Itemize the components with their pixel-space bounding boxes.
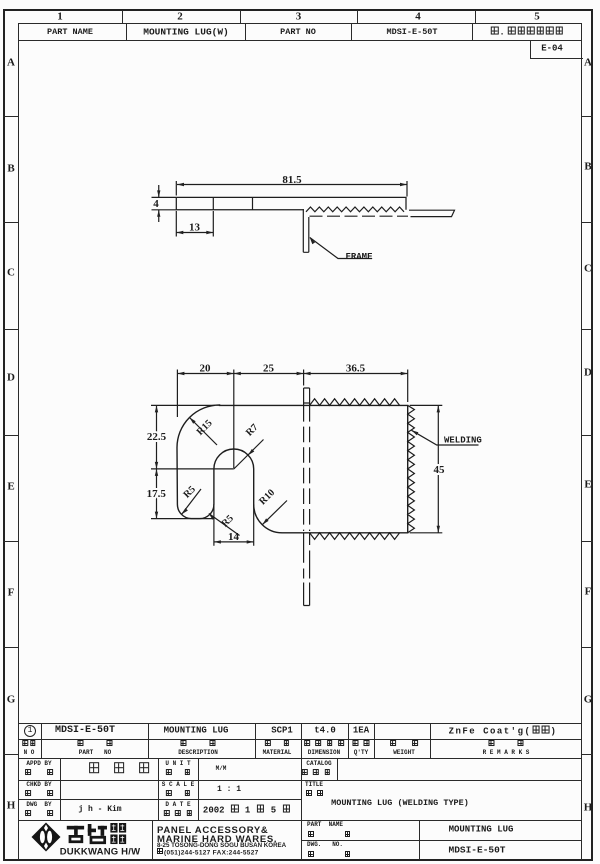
svg-text:20: 20 bbox=[200, 363, 212, 375]
svg-text:81.5: 81.5 bbox=[282, 174, 302, 186]
svg-text:4: 4 bbox=[153, 198, 159, 210]
svg-text:R7: R7 bbox=[244, 422, 260, 438]
svg-text:25: 25 bbox=[263, 363, 275, 375]
svg-text:45: 45 bbox=[434, 464, 446, 476]
svg-text:14: 14 bbox=[228, 531, 240, 543]
svg-text:17.5: 17.5 bbox=[147, 488, 167, 500]
svg-text:13: 13 bbox=[189, 222, 201, 234]
svg-text:FRAME: FRAME bbox=[345, 252, 373, 262]
svg-text:R15: R15 bbox=[195, 418, 215, 438]
svg-text:R5: R5 bbox=[182, 484, 198, 500]
svg-text:R10: R10 bbox=[257, 487, 277, 507]
svg-text:R5: R5 bbox=[220, 513, 236, 529]
svg-text:WELDING: WELDING bbox=[444, 436, 482, 446]
svg-text:22.5: 22.5 bbox=[147, 431, 167, 443]
svg-text:36.5: 36.5 bbox=[346, 363, 366, 375]
